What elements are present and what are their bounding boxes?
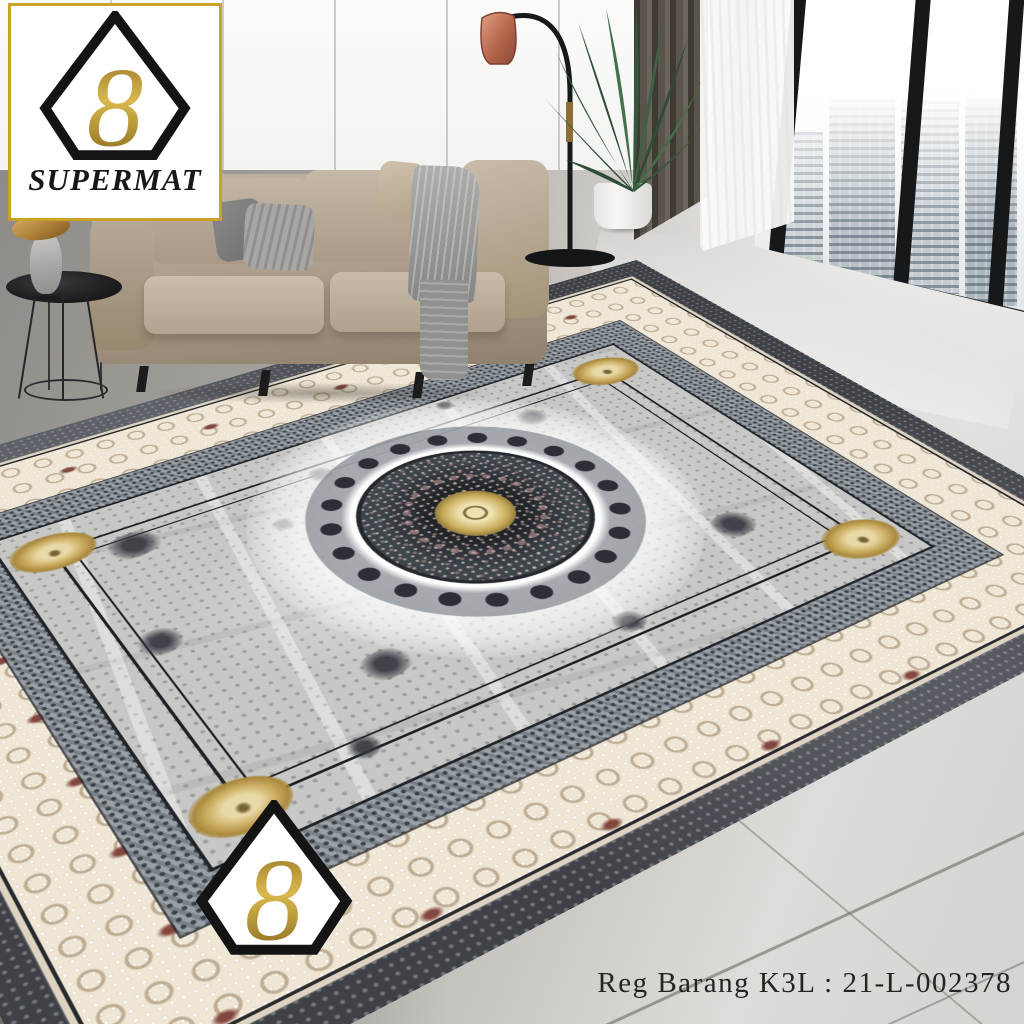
brand-badge: 8 SUPERMAT [8, 3, 222, 221]
side-table-base-ring [24, 379, 108, 401]
palm-fronds [538, 0, 708, 196]
throw-blanket-drape [420, 280, 468, 380]
brand-diamond-logo-icon: 8 [34, 11, 196, 160]
watermark-diamond-logo-icon: 8 [190, 800, 358, 955]
brand-symbol-8: 8 [87, 44, 144, 160]
figurine-body [30, 232, 62, 294]
watermark-symbol-8: 8 [245, 836, 304, 955]
sheer-curtain [700, 0, 794, 252]
palm-plant [538, 0, 708, 196]
brand-name: SUPERMAT [28, 162, 201, 198]
sofa-seat-cushion [144, 276, 324, 334]
brand-watermark: 8 [190, 800, 358, 955]
sofa-pillow [242, 202, 315, 272]
registration-text: Reg Barang K3L : 21-L-002378 [597, 967, 1012, 1000]
lamp-shade [481, 12, 516, 64]
decor-figurine [12, 210, 76, 302]
product-photo: 8 SUPERMAT 8 Reg Barang K3L : 21-L-00237… [0, 0, 1024, 1024]
sofa-shadow [82, 378, 562, 408]
